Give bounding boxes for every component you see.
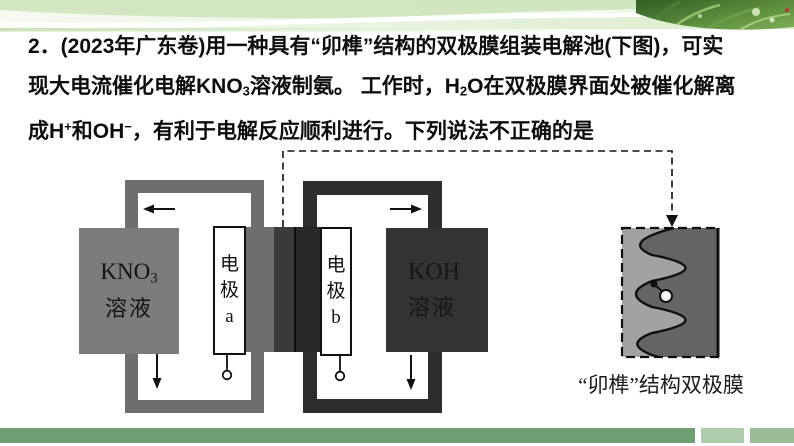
membrane-detail-box — [620, 226, 720, 359]
koh-formula: KOH — [408, 259, 460, 286]
question-line-1: 2．(2023年广东卷)用一种具有“卯榫”结构的双极膜组装电解池(下图)，可实 — [28, 27, 778, 67]
bipolar-membrane-layer-right — [296, 227, 322, 352]
bipolar-membrane-layer-middle — [274, 227, 296, 352]
footer-bar — [0, 428, 695, 443]
question-text: 2．(2023年广东卷)用一种具有“卯榫”结构的双极膜组装电解池(下图)，可实 … — [28, 27, 778, 147]
slide: 2．(2023年广东卷)用一种具有“卯榫”结构的双极膜组装电解池(下图)，可实 … — [0, 0, 794, 446]
flow-arrow-down-left-icon — [150, 354, 164, 390]
membrane-detail-caption: “卯榫”结构双极膜 — [556, 369, 766, 399]
koh-solution-box: KOH 溶液 — [386, 228, 488, 352]
koh-solution-label: 溶液 — [408, 290, 456, 322]
kno3-solution-box: KNO3 溶液 — [79, 228, 179, 354]
kno3-formula: KNO3 — [100, 259, 157, 288]
electrode-a-terminal — [221, 353, 233, 381]
electrode-b-terminal — [334, 354, 346, 382]
flow-arrow-left-icon — [142, 203, 176, 215]
flow-arrow-down-right-icon — [404, 355, 418, 391]
footer-square-light — [701, 428, 744, 443]
kno3-solution-label: 溶液 — [105, 291, 153, 323]
electrode-a-box: 电极a — [213, 226, 246, 355]
question-line-2: 现大电流催化电解KNO3溶液制氨。 工作时，H2O在双极膜界面处被催化解离 — [28, 67, 778, 107]
membrane-callout-dashed-line — [268, 143, 680, 235]
question-line-3: 成H+和OH−，有利于电解反应顺利进行。下列说法不正确的是 — [28, 107, 778, 147]
electrode-b-box: 电极b — [320, 227, 352, 356]
footer-square-mid — [750, 428, 794, 443]
bipolar-membrane-layer-left — [246, 227, 274, 352]
